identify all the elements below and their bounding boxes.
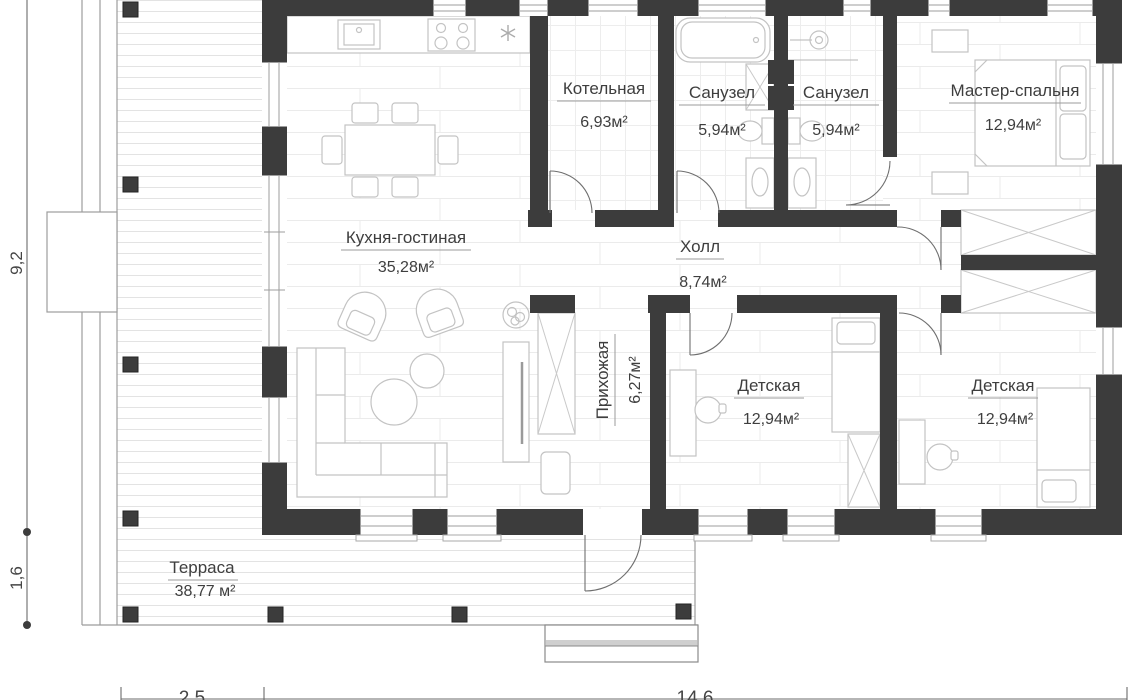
- vanity-sink: [788, 158, 816, 208]
- room-name: Прихожая: [593, 341, 612, 420]
- dim-side-height: 9,2: [7, 251, 26, 275]
- post: [452, 607, 467, 622]
- room-name: Детская: [738, 376, 801, 395]
- room-area: 35,28м²: [378, 259, 435, 276]
- room-name: Кухня-гостиная: [346, 228, 466, 247]
- wall-boiler-left: [530, 16, 548, 210]
- wall-bath2-master: [883, 16, 897, 157]
- window: [843, 0, 871, 16]
- floor-plan-svg: Котельная 6,93м² Санузел 5,94м² Санузел …: [0, 0, 1142, 700]
- kitchen-counter: [287, 16, 530, 53]
- room-name: Котельная: [563, 79, 645, 98]
- floor-tiles-boiler: [548, 16, 658, 210]
- room-area: 6,93м²: [580, 114, 628, 131]
- post: [123, 607, 138, 622]
- post: [123, 511, 138, 526]
- entrance-opening: [583, 509, 642, 535]
- bed-master: [975, 60, 1090, 166]
- dim-bottom-right: 14,6: [677, 688, 714, 700]
- window: [928, 0, 950, 16]
- dining-chair: [352, 103, 378, 123]
- window: [262, 175, 287, 347]
- dining-chair: [392, 103, 418, 123]
- window: [698, 0, 766, 16]
- window: [783, 509, 839, 541]
- dim-terrace-depth: 1,6: [7, 566, 26, 590]
- room-area: 12,94м²: [977, 411, 1034, 428]
- window: [262, 62, 287, 127]
- room-area: 12,94м²: [743, 411, 800, 428]
- desk: [670, 370, 696, 456]
- window: [443, 509, 501, 541]
- bed-kids: [1037, 388, 1090, 507]
- stove: [428, 19, 475, 51]
- window: [931, 509, 986, 541]
- toilet-cistern-box: [768, 60, 794, 84]
- dining-chair: [392, 177, 418, 197]
- dining-table: [345, 125, 435, 175]
- vanity-sink: [746, 158, 774, 208]
- wall-kids-kids: [880, 313, 897, 509]
- side-landing: [47, 212, 117, 312]
- room-area: 12,94м²: [985, 117, 1042, 134]
- tv-console: [503, 342, 529, 462]
- bench: [541, 452, 570, 494]
- room-name: Холл: [680, 237, 720, 256]
- window: [1096, 327, 1122, 375]
- bed-kids: [832, 318, 880, 432]
- window: [262, 397, 287, 463]
- window: [1047, 0, 1093, 16]
- toilet-cistern-box: [768, 86, 794, 110]
- hallway-wardrobe: [538, 313, 575, 434]
- room-name: Санузел: [803, 83, 869, 102]
- room-area: 8,74м²: [679, 274, 727, 291]
- room-name: Терраса: [169, 558, 235, 577]
- room-name: Санузел: [689, 83, 755, 102]
- terrace-deck-bottom: [262, 535, 695, 625]
- window: [588, 0, 638, 16]
- room-name: Мастер-спальня: [950, 81, 1079, 100]
- nightstand: [932, 30, 968, 52]
- window: [519, 0, 548, 16]
- floor-plan-page: Котельная 6,93м² Санузел 5,94м² Санузел …: [0, 0, 1142, 700]
- wall-bath-partition: [774, 16, 788, 210]
- nightstand: [932, 172, 968, 194]
- post: [123, 2, 138, 17]
- window: [356, 509, 417, 541]
- dim-bottom-left: 2,5: [179, 688, 205, 700]
- wardrobe-divider: [961, 255, 1096, 270]
- window: [694, 509, 752, 541]
- dining-chair: [322, 136, 342, 164]
- wall-hallway-kids: [650, 313, 666, 509]
- coffee-table: [410, 354, 444, 388]
- room-name: Детская: [972, 376, 1035, 395]
- room-area: 5,94м²: [698, 122, 746, 139]
- wall-boiler-bath: [658, 16, 674, 210]
- dining-chair: [352, 177, 378, 197]
- post: [676, 604, 691, 619]
- room-area: 38,77 м²: [175, 583, 236, 600]
- coffee-table: [371, 379, 417, 425]
- post: [123, 357, 138, 372]
- window: [1096, 63, 1122, 165]
- bathtub: [676, 18, 770, 62]
- window: [433, 0, 466, 16]
- entry-steps: [545, 625, 698, 662]
- room-area: 5,94м²: [812, 122, 860, 139]
- terrace-deck-left: [117, 0, 262, 625]
- dining-chair: [438, 136, 458, 164]
- post: [123, 177, 138, 192]
- desk: [899, 420, 925, 484]
- wardrobe: [848, 434, 880, 507]
- room-area: 6,27м²: [627, 356, 644, 404]
- kitchen-sink: [338, 20, 380, 49]
- post: [268, 607, 283, 622]
